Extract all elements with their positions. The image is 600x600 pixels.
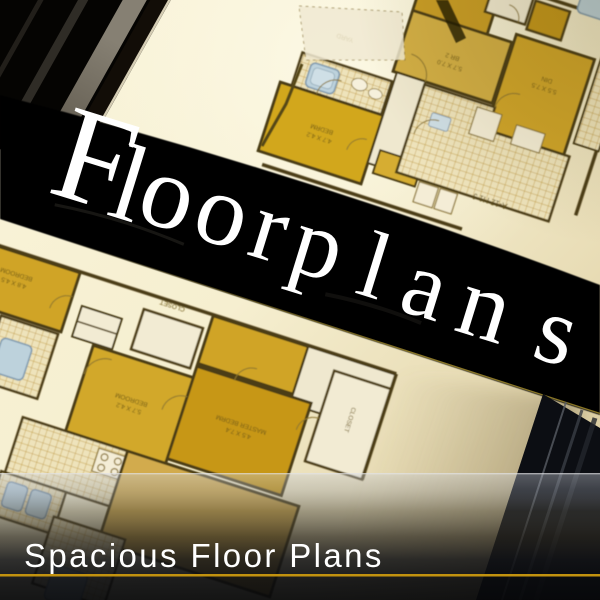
svg-text:Spacious Floor Plans: Spacious Floor Plans	[24, 537, 384, 574]
